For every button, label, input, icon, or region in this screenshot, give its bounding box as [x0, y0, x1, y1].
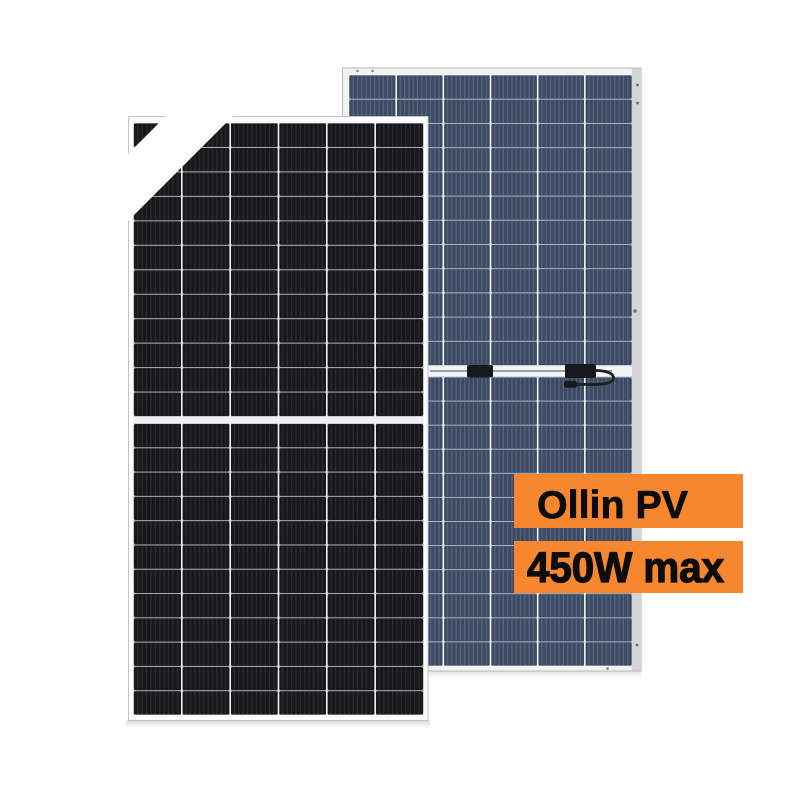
svg-text:Ollin PV: Ollin PV [537, 484, 688, 527]
svg-text:450W max: 450W max [527, 544, 724, 592]
